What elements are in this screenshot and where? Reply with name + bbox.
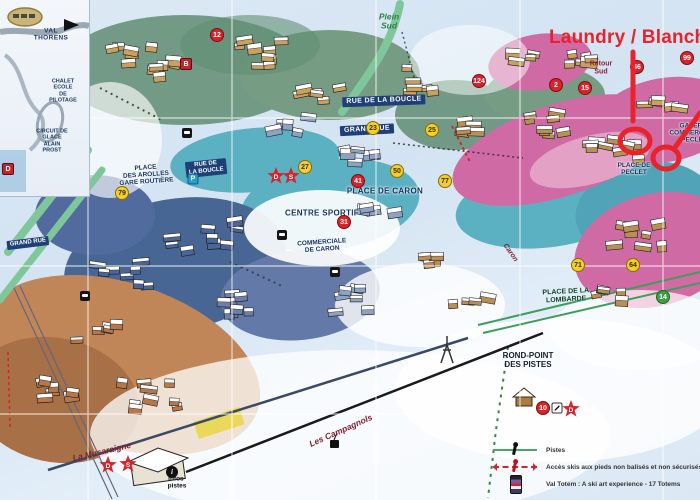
annotation-text: Laundry / Blanch xyxy=(549,27,700,49)
resort-map: Plein SudRetour SudRUE DE LA BOUCLERUE D… xyxy=(0,0,700,500)
access-icon xyxy=(492,460,538,474)
inset-badge: D xyxy=(2,163,14,175)
totem-icon xyxy=(492,477,538,491)
inset-title: VAL THORENS xyxy=(32,28,70,43)
legend-label: Pistes xyxy=(546,447,565,454)
legend-item: Accès skis aux pieds non balisés et non … xyxy=(492,460,700,474)
inset-circuit-label: CIRCUIT DE GLACE ALAIN PROST xyxy=(34,128,71,153)
map-canvas xyxy=(0,0,700,500)
legend-item: Val Totem : A ski art experience - 17 To… xyxy=(492,477,700,491)
legend-label: Accès skis aux pieds non balisés et non … xyxy=(546,464,700,471)
legend-item: Pistes xyxy=(492,443,700,457)
legend-label: Val Totem : A ski art experience - 17 To… xyxy=(546,481,680,488)
inset-map: VAL THORENS CHALET ECOLE DE PILOTAGE CIR… xyxy=(0,0,90,197)
piste-icon xyxy=(492,443,538,457)
legend: PistesAccès skis aux pieds non balisés e… xyxy=(492,443,700,491)
inset-chalet-label: CHALET ECOLE DE PILOTAGE xyxy=(49,78,77,103)
